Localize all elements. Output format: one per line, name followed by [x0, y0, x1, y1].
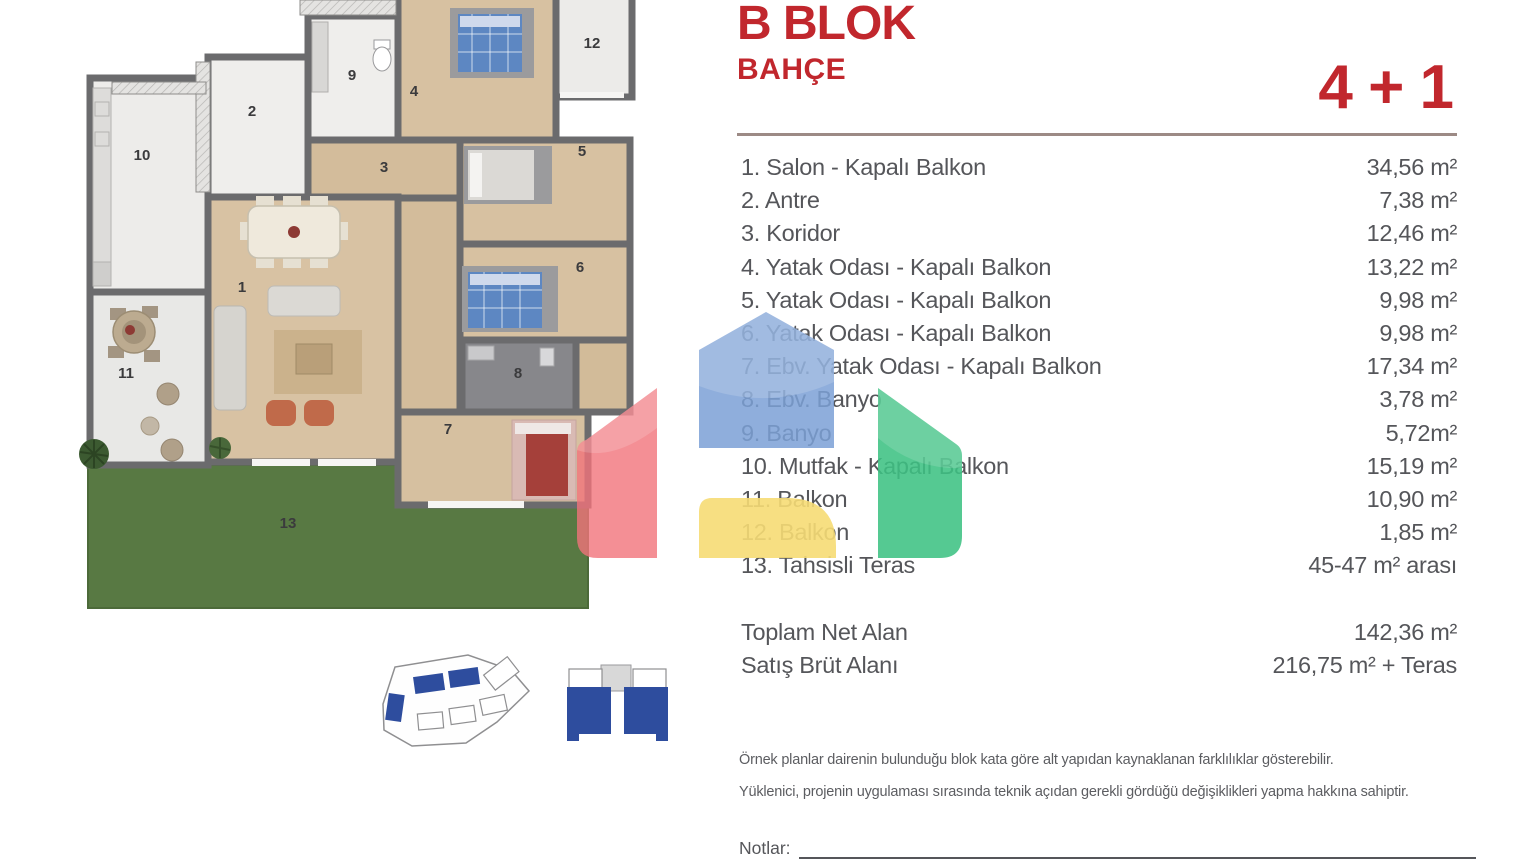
- room-row: 5. Yatak Odası - Kapalı Balkon 9,98 m²: [741, 284, 1457, 317]
- room-label: Satış Brüt Alanı: [741, 652, 898, 679]
- terrace-table-icon: [108, 306, 160, 362]
- tree-icon: [79, 439, 109, 469]
- room-label: 3. Koridor: [741, 220, 840, 247]
- bed-icon: [450, 8, 534, 78]
- pouf-icon: [161, 439, 183, 461]
- room-row: 1. Salon - Kapalı Balkon 34,56 m²: [741, 151, 1457, 184]
- room-label: 4. Yatak Odası - Kapalı Balkon: [741, 254, 1051, 281]
- block-title: B BLOK: [737, 0, 1483, 49]
- notes-row: Notlar:: [739, 838, 1476, 859]
- room-area: 9,98 m²: [1379, 287, 1457, 314]
- room-area: 216,75 m² + Teras: [1272, 652, 1457, 679]
- room-number-label: 12: [584, 35, 601, 52]
- kitchen-counter-icon: [93, 88, 111, 268]
- room-area: 15,19 m²: [1367, 453, 1457, 480]
- room-number-label: 6: [576, 259, 584, 276]
- pouf-icon: [157, 383, 179, 405]
- coffee-table-icon: [296, 344, 332, 374]
- room-label: 13. Tahsisli Teras: [741, 552, 915, 579]
- room-label: 11. Balkon: [741, 486, 847, 513]
- room-number-label: 7: [444, 421, 452, 438]
- room-list: 1. Salon - Kapalı Balkon 34,56 m² 2. Ant…: [741, 151, 1457, 582]
- header-divider: [737, 133, 1457, 136]
- dining-table-icon: [240, 196, 348, 268]
- room-row: 6. Yatak Odası - Kapalı Balkon 9,98 m²: [741, 317, 1457, 350]
- room-area: 12,46 m²: [1367, 220, 1457, 247]
- info-panel: B BLOK BAHÇE 4 + 1 1. Salon - Kapalı Bal…: [737, 0, 1483, 864]
- block-keyplan: [567, 665, 668, 741]
- bed-icon: [464, 146, 552, 204]
- room-label: 8. Ebv. Banyo: [741, 386, 882, 413]
- notes-label: Notlar:: [739, 838, 791, 859]
- room-row: 8. Ebv. Banyo 3,78 m²: [741, 383, 1457, 416]
- room-row: 11. Balkon 10,90 m²: [741, 483, 1457, 516]
- room-label: 10. Mutfak - Kapalı Balkon: [741, 453, 1009, 480]
- disclaimer-text: Yüklenici, projenin uygulaması sırasında…: [739, 784, 1483, 800]
- header: B BLOK BAHÇE 4 + 1: [737, 0, 1483, 87]
- bed-icon: [512, 420, 576, 500]
- site-keyplan: [383, 655, 529, 746]
- room-number-label: 8: [514, 365, 522, 382]
- bed-icon: [462, 266, 558, 332]
- notes-underline: [799, 843, 1476, 859]
- brochure-page: 12345678910111213: [0, 0, 1536, 864]
- room-number-label: 4: [410, 83, 419, 100]
- room-row: 3. Koridor 12,46 m²: [741, 217, 1457, 250]
- room-row: 9. Banyo 5,72m²: [741, 417, 1457, 450]
- room-label: 1. Salon - Kapalı Balkon: [741, 154, 986, 181]
- totals-block: Toplam Net Alan 142,36 m² Satış Brüt Ala…: [741, 616, 1457, 682]
- room-label: 12. Balkon: [741, 519, 849, 546]
- room-label: 5. Yatak Odası - Kapalı Balkon: [741, 287, 1051, 314]
- room-label: Toplam Net Alan: [741, 619, 908, 646]
- room-number-label: 9: [348, 67, 356, 84]
- armchair-icon: [304, 400, 334, 426]
- room-row: 12. Balkon 1,85 m²: [741, 516, 1457, 549]
- room-label: 2. Antre: [741, 187, 820, 214]
- sofa-icon: [214, 306, 246, 410]
- room-number-label: 1: [238, 279, 246, 296]
- total-row: Toplam Net Alan 142,36 m²: [741, 616, 1457, 649]
- room-area: 9,98 m²: [1379, 320, 1457, 347]
- sink-icon: [468, 346, 494, 360]
- plant-icon: [209, 437, 231, 459]
- toilet-icon: [540, 348, 554, 366]
- room-area: 7,38 m²: [1379, 187, 1457, 214]
- sofa-icon: [268, 286, 340, 316]
- room-row: 13. Tahsisli Teras 45-47 m² arası: [741, 549, 1457, 582]
- room-label: 7. Ebv. Yatak Odası - Kapalı Balkon: [741, 353, 1102, 380]
- room-area: 13,22 m²: [1367, 254, 1457, 281]
- room-number-label: 13: [280, 515, 297, 532]
- room-number-label: 11: [118, 365, 134, 382]
- room-area: 1,85 m²: [1379, 519, 1457, 546]
- room-number-label: 2: [248, 103, 256, 120]
- floor-plan: 12345678910111213: [0, 0, 737, 864]
- room-number-label: 10: [134, 147, 151, 164]
- room-number-label: 5: [578, 143, 586, 160]
- room-number-label: 3: [380, 159, 388, 176]
- disclaimers: Örnek planlar dairenin bulunduğu blok ka…: [739, 752, 1483, 816]
- toilet-icon: [373, 40, 391, 71]
- room-label: 6. Yatak Odası - Kapalı Balkon: [741, 320, 1051, 347]
- pouf-icon: [141, 417, 159, 435]
- room-area: 142,36 m²: [1354, 619, 1457, 646]
- room-area: 45-47 m² arası: [1308, 552, 1457, 579]
- room-label: 9. Banyo: [741, 420, 831, 447]
- room-area: 17,34 m²: [1367, 353, 1457, 380]
- unit-type-label: 4 + 1: [1318, 52, 1453, 123]
- room-area: 34,56 m²: [1367, 154, 1457, 181]
- room-row: 2. Antre 7,38 m²: [741, 184, 1457, 217]
- room-area: 10,90 m²: [1367, 486, 1457, 513]
- room-row: 10. Mutfak - Kapalı Balkon 15,19 m²: [741, 450, 1457, 483]
- room-row: 4. Yatak Odası - Kapalı Balkon 13,22 m²: [741, 251, 1457, 284]
- total-row: Satış Brüt Alanı 216,75 m² + Teras: [741, 649, 1457, 682]
- disclaimer-text: Örnek planlar dairenin bulunduğu blok ka…: [739, 752, 1483, 768]
- room-row: 7. Ebv. Yatak Odası - Kapalı Balkon 17,3…: [741, 350, 1457, 383]
- room-area: 3,78 m²: [1379, 386, 1457, 413]
- room-area: 5,72m²: [1386, 420, 1457, 447]
- bath-counter-icon: [312, 22, 328, 92]
- armchair-icon: [266, 400, 296, 426]
